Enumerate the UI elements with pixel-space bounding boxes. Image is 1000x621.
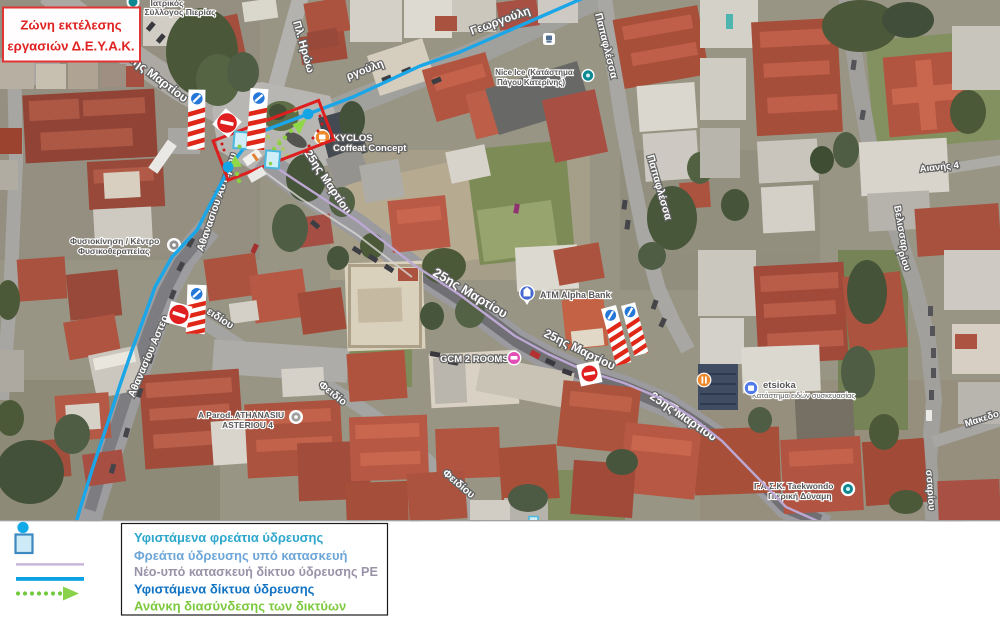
- svg-text:Υφιστάμενα φρεάτια ύδρευσης: Υφιστάμενα φρεάτια ύδρευσης: [134, 530, 323, 545]
- svg-text:Φρεάτια ύδρευσης υπό κατασκευή: Φρεάτια ύδρευσης υπό κατασκευή: [134, 548, 348, 563]
- svg-text:Υφιστάμενα δίκτυα ύδρευσης: Υφιστάμενα δίκτυα ύδρευσης: [134, 582, 315, 597]
- svg-text:Ανάνκη διασύνδεσης των δικτύων: Ανάνκη διασύνδεσης των δικτύων: [134, 599, 346, 614]
- svg-text:εργασιών Δ.Ε.Υ.Α.Κ.: εργασιών Δ.Ε.Υ.Α.Κ.: [7, 39, 134, 54]
- svg-text:Ζώνη εκτέλεσης: Ζώνη εκτέλεσης: [20, 18, 121, 33]
- svg-text:Νέο-υπό κατασκευή δίκτυο ύδρευ: Νέο-υπό κατασκευή δίκτυο ύδρευσης PE: [134, 565, 378, 579]
